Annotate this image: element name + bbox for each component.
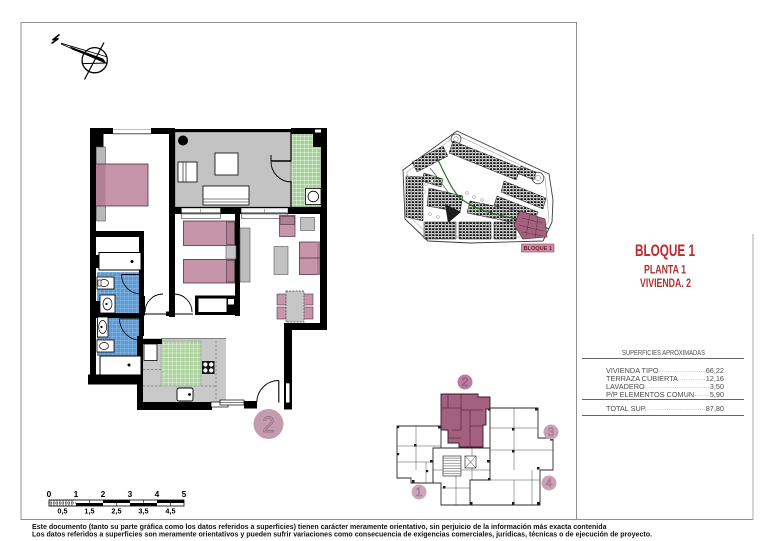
svg-text:2: 2: [262, 412, 274, 437]
svg-text:P/P ELEMENTOS COMUN: P/P ELEMENTOS COMUN: [606, 390, 694, 399]
svg-text:5: 5: [182, 489, 187, 499]
svg-text:0: 0: [47, 489, 52, 499]
svg-text:2: 2: [101, 489, 106, 499]
svg-text:2,5: 2,5: [111, 507, 121, 516]
svg-text:3: 3: [128, 489, 133, 499]
svg-text:3: 3: [548, 427, 554, 439]
svg-text:BLOQUE 1: BLOQUE 1: [523, 246, 552, 252]
svg-text:4: 4: [155, 489, 160, 499]
svg-text:PLANTA 1: PLANTA 1: [644, 265, 686, 277]
svg-text:3,5: 3,5: [138, 507, 148, 516]
svg-text:TOTAL SUP.: TOTAL SUP.: [606, 404, 647, 413]
svg-text:87,80: 87,80: [706, 404, 724, 413]
svg-text:0,5: 0,5: [57, 507, 67, 516]
svg-text:1: 1: [416, 487, 422, 499]
svg-text:BLOQUE 1: BLOQUE 1: [635, 241, 695, 260]
svg-text:5,90: 5,90: [710, 390, 724, 399]
svg-text:VIVIENDA. 2: VIVIENDA. 2: [640, 278, 691, 290]
svg-text:Los datos referidos a superfic: Los datos referidos a superficies son me…: [32, 532, 652, 539]
svg-text:1,5: 1,5: [84, 507, 94, 516]
svg-text:1: 1: [74, 489, 79, 499]
svg-text:4,5: 4,5: [165, 507, 175, 516]
svg-text:Este documento (tanto su parte: Este documento (tanto su parte gráfica c…: [32, 524, 607, 531]
svg-text:SUPERFICIES APROXIMADAS: SUPERFICIES APROXIMADAS: [622, 348, 705, 357]
svg-text:2: 2: [462, 377, 468, 389]
svg-text:4: 4: [546, 478, 553, 490]
